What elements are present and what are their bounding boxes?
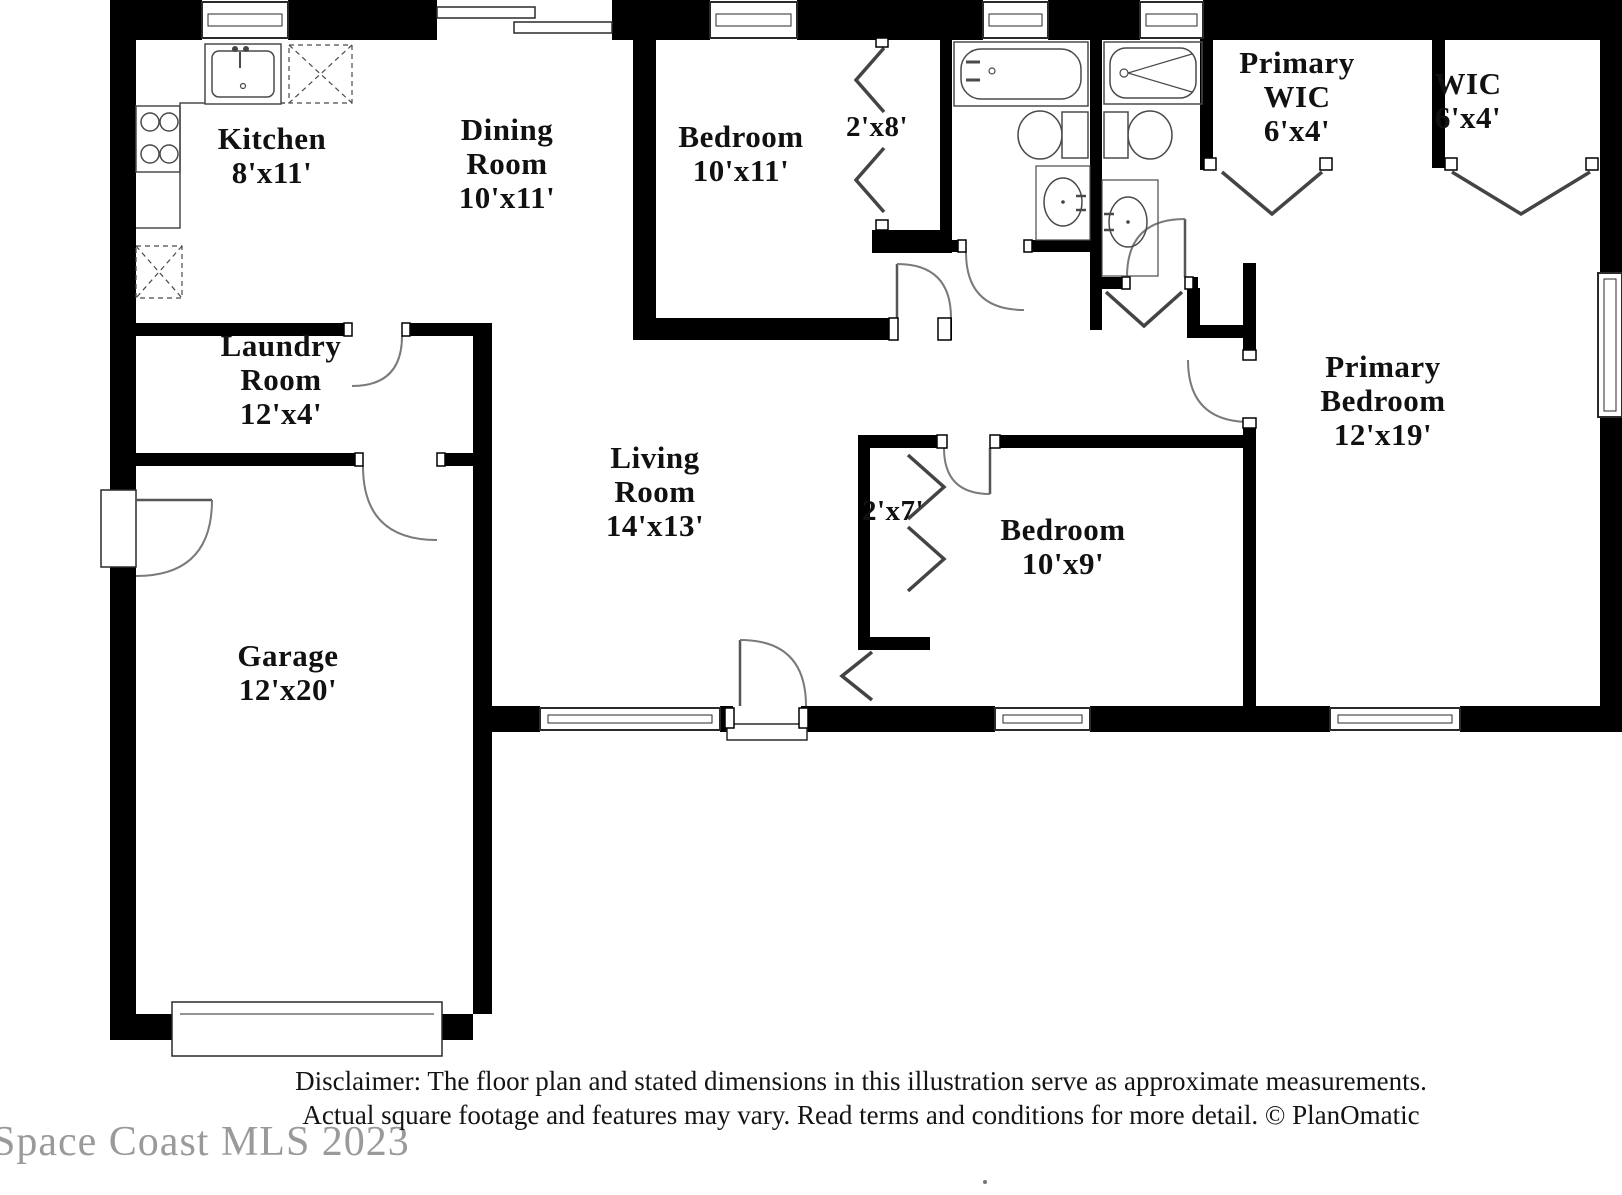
primary-wic-bifold bbox=[1222, 172, 1322, 214]
hall-bath-vanity bbox=[1036, 166, 1090, 240]
laundry-room-name: Laundry Room bbox=[191, 329, 371, 397]
hall-bath-door-arc bbox=[966, 252, 1024, 310]
garage-name: Garage bbox=[178, 639, 398, 673]
room-label-dining-room: Dining Room 10'x11' bbox=[432, 113, 582, 215]
disclaimer-line-2: Actual square footage and features may v… bbox=[200, 1098, 1522, 1132]
disclaimer: Disclaimer: The floor plan and stated di… bbox=[200, 1064, 1522, 1132]
garage-dims: 12'x20' bbox=[178, 673, 398, 707]
bedroom-3-dims: 10'x9' bbox=[933, 547, 1193, 581]
hall-bath-tub bbox=[954, 42, 1088, 106]
room-label-laundry-room: Laundry Room 12'x4' bbox=[191, 329, 371, 431]
laundry-garage-door-arc bbox=[363, 466, 437, 540]
living-room-window bbox=[540, 708, 720, 730]
room-label-primary-bedroom: Primary Bedroom 12'x19' bbox=[1273, 350, 1493, 452]
garage-side-door bbox=[136, 500, 212, 576]
room-label-living-room: Living Room 14'x13' bbox=[575, 441, 735, 543]
hall-bath-window bbox=[983, 2, 1048, 38]
bedroom2-door bbox=[897, 264, 951, 318]
bedroom-3-name: Bedroom bbox=[933, 513, 1193, 547]
wic-dims: 6'x4' bbox=[1388, 101, 1548, 135]
bedroom-2-closet-dims: 2'x8' bbox=[827, 112, 927, 144]
room-label-garage: Garage 12'x20' bbox=[178, 639, 398, 707]
laundry-room-dims: 12'x4' bbox=[191, 397, 371, 431]
dining-room-dims: 10'x11' bbox=[432, 181, 582, 215]
hall-bath-toilet bbox=[1018, 111, 1088, 159]
bedroom2-closet-bifold-upper bbox=[856, 48, 884, 112]
stray-dot bbox=[983, 1180, 987, 1184]
living-room-dims: 14'x13' bbox=[575, 509, 735, 543]
kitchen-name: Kitchen bbox=[172, 122, 372, 156]
bedroom-2-dims: 10'x11' bbox=[611, 154, 871, 188]
primary-bedroom-window bbox=[1330, 708, 1460, 730]
entry-closet-bifold bbox=[842, 652, 872, 700]
garage-door bbox=[172, 1002, 442, 1056]
dining-room-name: Dining Room bbox=[432, 113, 582, 181]
primary-bath-door bbox=[1127, 219, 1185, 277]
living-room-name: Living Room bbox=[575, 441, 735, 509]
hall-closet-dims: 2'x7' bbox=[843, 496, 943, 528]
linen-closet-bifold bbox=[1106, 292, 1182, 326]
primary-bedroom-side-window bbox=[1598, 273, 1622, 417]
primary-bedroom-name: Primary Bedroom bbox=[1273, 350, 1493, 418]
primary-bedroom-door-arc bbox=[1188, 360, 1250, 422]
floor-plan: Kitchen 8'x11' Dining Room 10'x11' Bedro… bbox=[0, 0, 1622, 1195]
garage-side-door-recess bbox=[101, 490, 136, 567]
bedroom3-door bbox=[944, 448, 990, 494]
front-door-threshold bbox=[727, 724, 807, 740]
room-label-bedroom-3: Bedroom 10'x9' bbox=[933, 513, 1193, 581]
room-label-primary-wic: Primary WIC 6'x4' bbox=[1217, 46, 1377, 148]
front-door bbox=[740, 640, 806, 706]
patio-sliding-door bbox=[437, 7, 612, 33]
wic-name: WIC bbox=[1388, 67, 1548, 101]
room-label-wic: WIC 6'x4' bbox=[1388, 67, 1548, 135]
disclaimer-line-1: Disclaimer: The floor plan and stated di… bbox=[200, 1064, 1522, 1098]
primary-bath-tub-shower bbox=[1104, 42, 1202, 104]
primary-wic-dims: 6'x4' bbox=[1217, 114, 1377, 148]
room-label-hall-closet: 2'x7' bbox=[843, 496, 943, 528]
bedroom2-window bbox=[710, 2, 797, 38]
primary-bath-window bbox=[1140, 2, 1203, 38]
kitchen-dims: 8'x11' bbox=[172, 156, 372, 190]
kitchen-window bbox=[202, 2, 288, 38]
room-label-kitchen: Kitchen 8'x11' bbox=[172, 122, 372, 190]
bedroom3-window bbox=[995, 708, 1090, 730]
primary-wic-name: Primary WIC bbox=[1217, 46, 1377, 114]
kitchen-sink bbox=[205, 44, 281, 104]
room-label-bedroom-2-closet: 2'x8' bbox=[827, 112, 927, 144]
primary-bath-toilet bbox=[1104, 111, 1172, 159]
wic-bifold bbox=[1452, 172, 1590, 214]
hall-bath-fixtures bbox=[954, 42, 1090, 240]
pantry-cabinet bbox=[136, 246, 182, 298]
primary-bath-fixtures bbox=[1102, 42, 1202, 276]
primary-bedroom-dims: 12'x19' bbox=[1273, 418, 1493, 452]
dishwasher bbox=[289, 45, 352, 103]
